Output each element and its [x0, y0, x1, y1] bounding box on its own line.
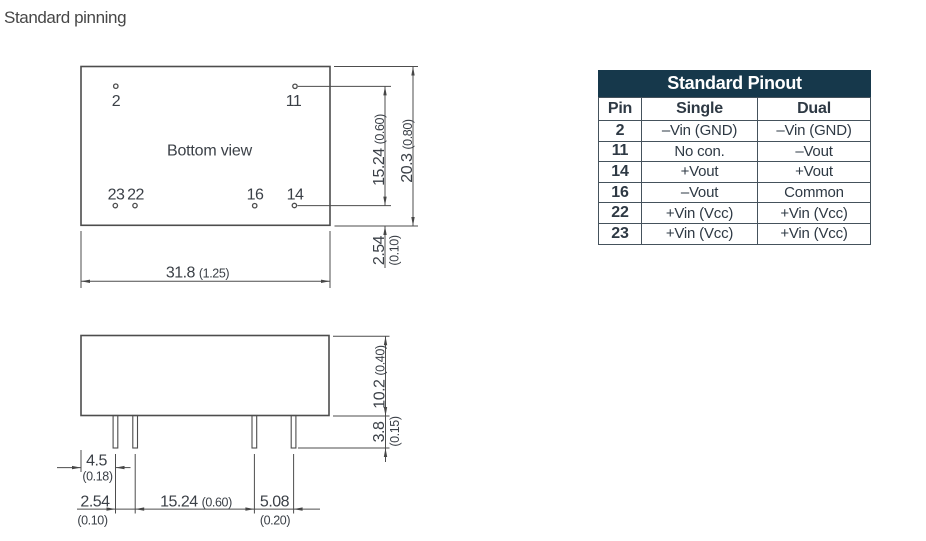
svg-text:31.8 (1.25): 31.8 (1.25)	[166, 265, 230, 282]
svg-text:15.24 (0.60): 15.24 (0.60)	[371, 114, 388, 186]
svg-text:15.24 (0.60): 15.24 (0.60)	[160, 494, 232, 511]
svg-text:2.54: 2.54	[80, 494, 110, 511]
svg-text:3.8: 3.8	[371, 421, 388, 442]
svg-text:23: 23	[108, 187, 125, 204]
svg-text:2.54: 2.54	[371, 235, 388, 265]
svg-text:4.5: 4.5	[86, 453, 107, 470]
svg-text:Bottom view: Bottom view	[167, 143, 253, 160]
svg-text:20.3 (0.80): 20.3 (0.80)	[399, 119, 416, 183]
svg-text:14: 14	[287, 187, 304, 204]
svg-text:(0.10): (0.10)	[77, 514, 107, 528]
svg-text:2: 2	[112, 93, 121, 110]
svg-text:(0.15): (0.15)	[388, 416, 402, 446]
svg-text:10.2 (0.40): 10.2 (0.40)	[372, 345, 389, 409]
svg-text:(0.18): (0.18)	[82, 470, 112, 484]
svg-text:(0.20): (0.20)	[260, 514, 290, 528]
svg-text:(0.10): (0.10)	[388, 235, 402, 265]
svg-text:5.08: 5.08	[260, 494, 290, 511]
svg-text:16: 16	[247, 187, 264, 204]
svg-text:11: 11	[286, 93, 302, 110]
svg-text:22: 22	[127, 187, 144, 204]
